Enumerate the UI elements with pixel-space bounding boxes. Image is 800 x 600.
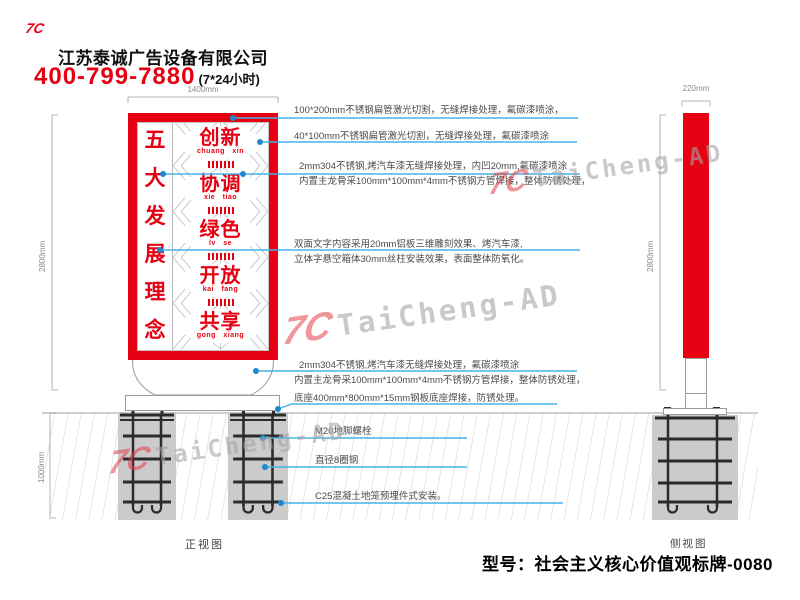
value-word-pinyin: xie tiao (173, 194, 268, 202)
side-view-label: 侧视图 (670, 536, 708, 551)
value-word-pinyin: lv se (173, 240, 268, 248)
sign-board: 五 大 发 展 理 念 (128, 113, 278, 360)
title-char: 发 (145, 206, 166, 227)
annotation-text: C25混凝土地笼预埋件式安装。 (315, 492, 446, 502)
watermark: 7C TaiCheng-AD (280, 273, 563, 355)
title-char: 展 (145, 244, 166, 265)
phone-number: 400-799-7880 (34, 63, 195, 91)
pedestal-front (126, 357, 280, 396)
foundation-front-left (118, 412, 176, 520)
annotation-text: 双面文字内容采用20mm铝板三维雕刻效果、烤汽车漆, (294, 240, 523, 250)
annotation-text: 内置主龙骨采100mm*100mm*4mm不锈钢方管焊接，整体防锈处理， (294, 376, 585, 386)
sign-title-column: 五 大 发 展 理 念 (138, 123, 173, 350)
value-word: 共享 gong xiang (173, 312, 268, 340)
foundation-side (652, 415, 738, 520)
dim-height-label-side: 2800mm (646, 241, 655, 272)
rebar-cage-icon (652, 407, 738, 520)
value-word: 创新 chuang xin (173, 128, 268, 156)
annotation-text: 100*200mm不锈钢扁管激光切割，无缝焊接处理，氟碳漆喷涂， (294, 106, 564, 116)
annotation-text: 底座400mm*800mm*15mm钢板底座焊接，防锈处理。 (294, 394, 524, 404)
dim-height-label-front: 2800mm (38, 241, 47, 272)
spec-sheet: 7C 江苏泰诚广告设备有限公司 400-799-7880 (7*24小时) 14… (0, 0, 800, 600)
pedestal-side (685, 358, 707, 409)
value-word-cn: 创新 (173, 128, 268, 148)
value-word-pinyin: gong xiang (173, 332, 268, 340)
value-word-cn: 开放 (173, 266, 268, 286)
front-view-label: 正视图 (185, 536, 224, 552)
base-plate-side (663, 408, 727, 415)
annotation-text: 直径8圈钢 (315, 456, 358, 466)
stripe-separator (208, 299, 234, 306)
title-char: 大 (145, 168, 166, 189)
side-view-pole (683, 113, 709, 358)
value-word-pinyin: chuang xin (173, 148, 268, 156)
stripe-separator (208, 253, 234, 260)
model-number: 型号：社会主义核心价值观标牌-0080 (482, 550, 773, 575)
phone-row: 400-799-7880 (7*24小时) (34, 63, 260, 91)
stripe-separator (208, 161, 234, 168)
pedestal-side-joint-line (686, 393, 706, 394)
sign-inner-panel: 五 大 发 展 理 念 (137, 122, 269, 351)
value-word-cn: 协调 (173, 174, 268, 194)
annotation-text: 立体字悬空箱体30mm丝柱安装效果，表面整体防氧化。 (294, 255, 529, 265)
title-char: 念 (145, 320, 166, 341)
title-char: 理 (145, 282, 166, 303)
rebar-cage-icon (118, 403, 176, 520)
sign-words-column: 创新 chuang xin 协调 xie tiao 绿色 lv se 开放 ka… (173, 123, 268, 350)
annotation-text: 内置主龙骨采100mm*100mm*4mm不锈钢方管焊接，整体防锈处理， (299, 177, 590, 187)
base-plate-front (125, 395, 280, 411)
annotation-text: 2mm304不锈钢,烤汽车漆无缝焊接处理，氟碳漆喷涂 (299, 361, 519, 371)
stripe-separator (208, 207, 234, 214)
annotation-text: M20地脚螺栓 (315, 427, 371, 437)
dim-depth-label-side: 220mm (678, 84, 714, 93)
value-word: 绿色 lv se (173, 220, 268, 248)
value-word-cn: 共享 (173, 312, 268, 332)
value-word: 开放 kai fang (173, 266, 268, 294)
watermark-text: TaiCheng-AD (335, 277, 563, 342)
value-word-pinyin: kai fang (173, 286, 268, 294)
dim-foundation-depth-label: 1000mm (37, 452, 46, 483)
dim-width-label: 1400mm (180, 85, 226, 94)
title-char: 五 (145, 130, 166, 151)
value-word-cn: 绿色 (173, 220, 268, 240)
annotation-text: 40*100mm不锈钢扁管激光切割，无缝焊接处理，氟碳漆喷涂 (294, 132, 549, 142)
annotation-text: 2mm304不锈钢,烤汽车漆无缝焊接处理，内凹20mm,氟碳漆喷涂 (299, 162, 567, 172)
rebar-cage-icon (228, 403, 288, 520)
value-word: 协调 xie tiao (173, 174, 268, 202)
watermark-logo-icon: 7C (279, 304, 335, 355)
brand-logo-icon: 7C (24, 20, 45, 36)
foundation-front-right (228, 412, 288, 520)
